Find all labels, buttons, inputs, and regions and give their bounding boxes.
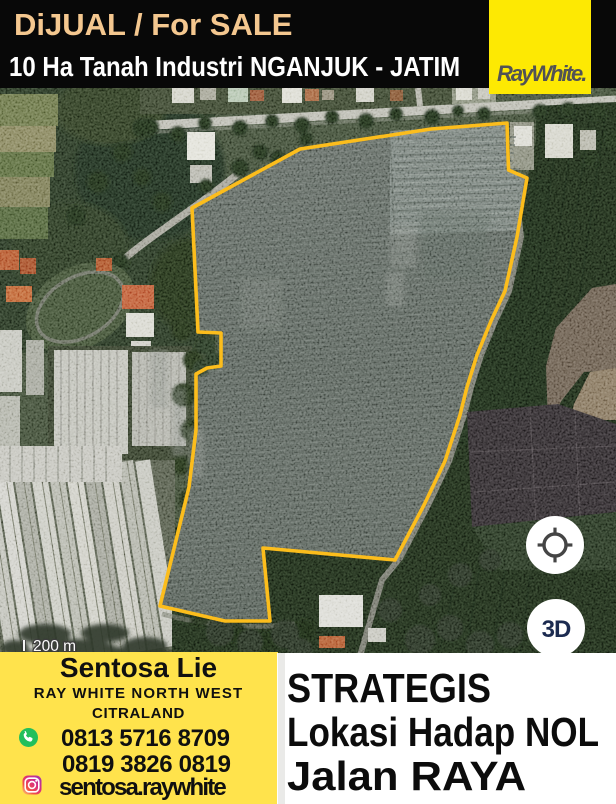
svg-text:3D: 3D bbox=[542, 616, 571, 643]
